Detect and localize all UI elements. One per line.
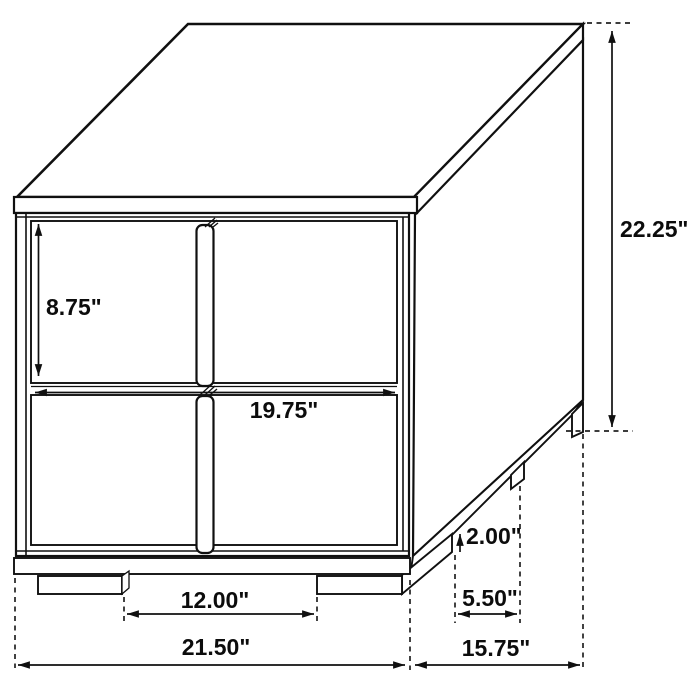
dimension-label-side-leg-spacing: 5.50" [462, 585, 518, 611]
cabinet-top-front-edge [14, 197, 417, 213]
dimension-label-overall-width: 21.50" [182, 634, 250, 660]
front-right-foot [317, 576, 402, 594]
dimension-label-overall-height: 22.25" [620, 216, 688, 242]
dimension-overall-depth: 15.75" [415, 635, 580, 665]
front-left-foot [38, 576, 122, 594]
front-base-rail [14, 558, 410, 574]
furniture-dimension-diagram: 8.75" 22.25" 19.75" 12.00" 21.50" 15.75"… [0, 0, 700, 700]
dimension-label-leg-height: 2.00" [466, 523, 522, 549]
drawer-handle-upper [197, 225, 214, 386]
dimension-label-front-leg-spacing: 12.00" [181, 587, 249, 613]
nightstand-line-drawing: 8.75" 22.25" 19.75" 12.00" 21.50" 15.75"… [0, 0, 700, 700]
dimension-overall-height: 22.25" [612, 31, 688, 427]
dimension-side-leg-spacing: 5.50" [458, 585, 518, 614]
dimension-label-drawer-height: 8.75" [46, 294, 102, 320]
drawer-handle-lower [197, 396, 214, 553]
dimension-label-drawer-width: 19.75" [250, 397, 318, 423]
dimension-leg-height: 2.00" [460, 523, 522, 552]
dimension-front-leg-spacing: 12.00" [127, 587, 314, 614]
dimension-label-overall-depth: 15.75" [462, 635, 530, 661]
dimension-overall-width: 21.50" [18, 634, 405, 665]
